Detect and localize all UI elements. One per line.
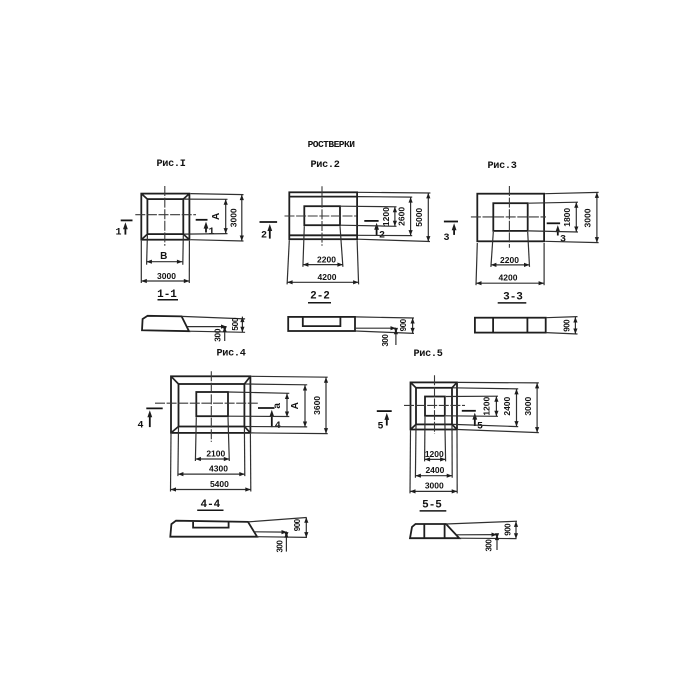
svg-text:А: А (211, 213, 222, 220)
svg-text:3-3: 3-3 (503, 291, 523, 303)
svg-text:2100: 2100 (206, 448, 225, 458)
svg-text:РОСТВЕРКИ: РОСТВЕРКИ (308, 139, 356, 150)
svg-text:1800: 1800 (562, 208, 572, 227)
svg-text:1200: 1200 (425, 449, 444, 459)
svg-text:4: 4 (137, 421, 143, 432)
svg-text:4300: 4300 (209, 464, 228, 474)
svg-text:3000: 3000 (425, 480, 444, 490)
svg-text:2400: 2400 (425, 465, 444, 475)
svg-text:4-4: 4-4 (200, 499, 220, 511)
svg-text:3000: 3000 (583, 208, 593, 227)
svg-text:2: 2 (261, 231, 267, 242)
svg-text:5-5: 5-5 (422, 500, 442, 512)
svg-text:300: 300 (276, 540, 285, 553)
svg-text:5400: 5400 (210, 479, 229, 489)
svg-text:2600: 2600 (396, 207, 406, 226)
svg-text:3600: 3600 (312, 396, 322, 415)
svg-text:3000: 3000 (228, 208, 238, 227)
svg-text:500: 500 (231, 317, 240, 331)
svg-text:900: 900 (399, 318, 408, 331)
svg-text:1200: 1200 (381, 207, 391, 226)
svg-text:2200: 2200 (317, 254, 336, 264)
svg-text:300: 300 (381, 334, 390, 347)
svg-text:300: 300 (213, 328, 222, 342)
svg-text:2400: 2400 (502, 396, 512, 415)
svg-text:3000: 3000 (523, 396, 533, 415)
svg-text:1200: 1200 (482, 396, 492, 415)
svg-text:Рис.5: Рис.5 (413, 349, 442, 360)
svg-text:4200: 4200 (499, 273, 518, 283)
svg-text:900: 900 (503, 523, 512, 536)
svg-text:3: 3 (443, 233, 449, 244)
svg-text:2-2: 2-2 (310, 290, 330, 302)
svg-text:900: 900 (293, 518, 302, 531)
svg-text:300: 300 (485, 539, 494, 552)
svg-text:1: 1 (208, 227, 214, 238)
svg-text:3000: 3000 (157, 271, 176, 281)
svg-text:3: 3 (560, 235, 566, 246)
svg-text:4200: 4200 (318, 272, 337, 282)
svg-text:2200: 2200 (500, 255, 519, 265)
svg-text:Рис.I: Рис.I (156, 159, 185, 170)
svg-text:а: а (272, 403, 283, 409)
svg-text:5000: 5000 (414, 208, 424, 227)
svg-text:В: В (160, 251, 167, 262)
svg-text:900: 900 (563, 319, 572, 332)
svg-text:1: 1 (115, 228, 121, 239)
svg-text:Рис.2: Рис.2 (310, 160, 339, 171)
svg-text:Рис.4: Рис.4 (216, 348, 245, 359)
svg-text:5: 5 (377, 422, 383, 433)
svg-text:Рис.3: Рис.3 (487, 161, 516, 172)
svg-text:А: А (290, 402, 301, 409)
